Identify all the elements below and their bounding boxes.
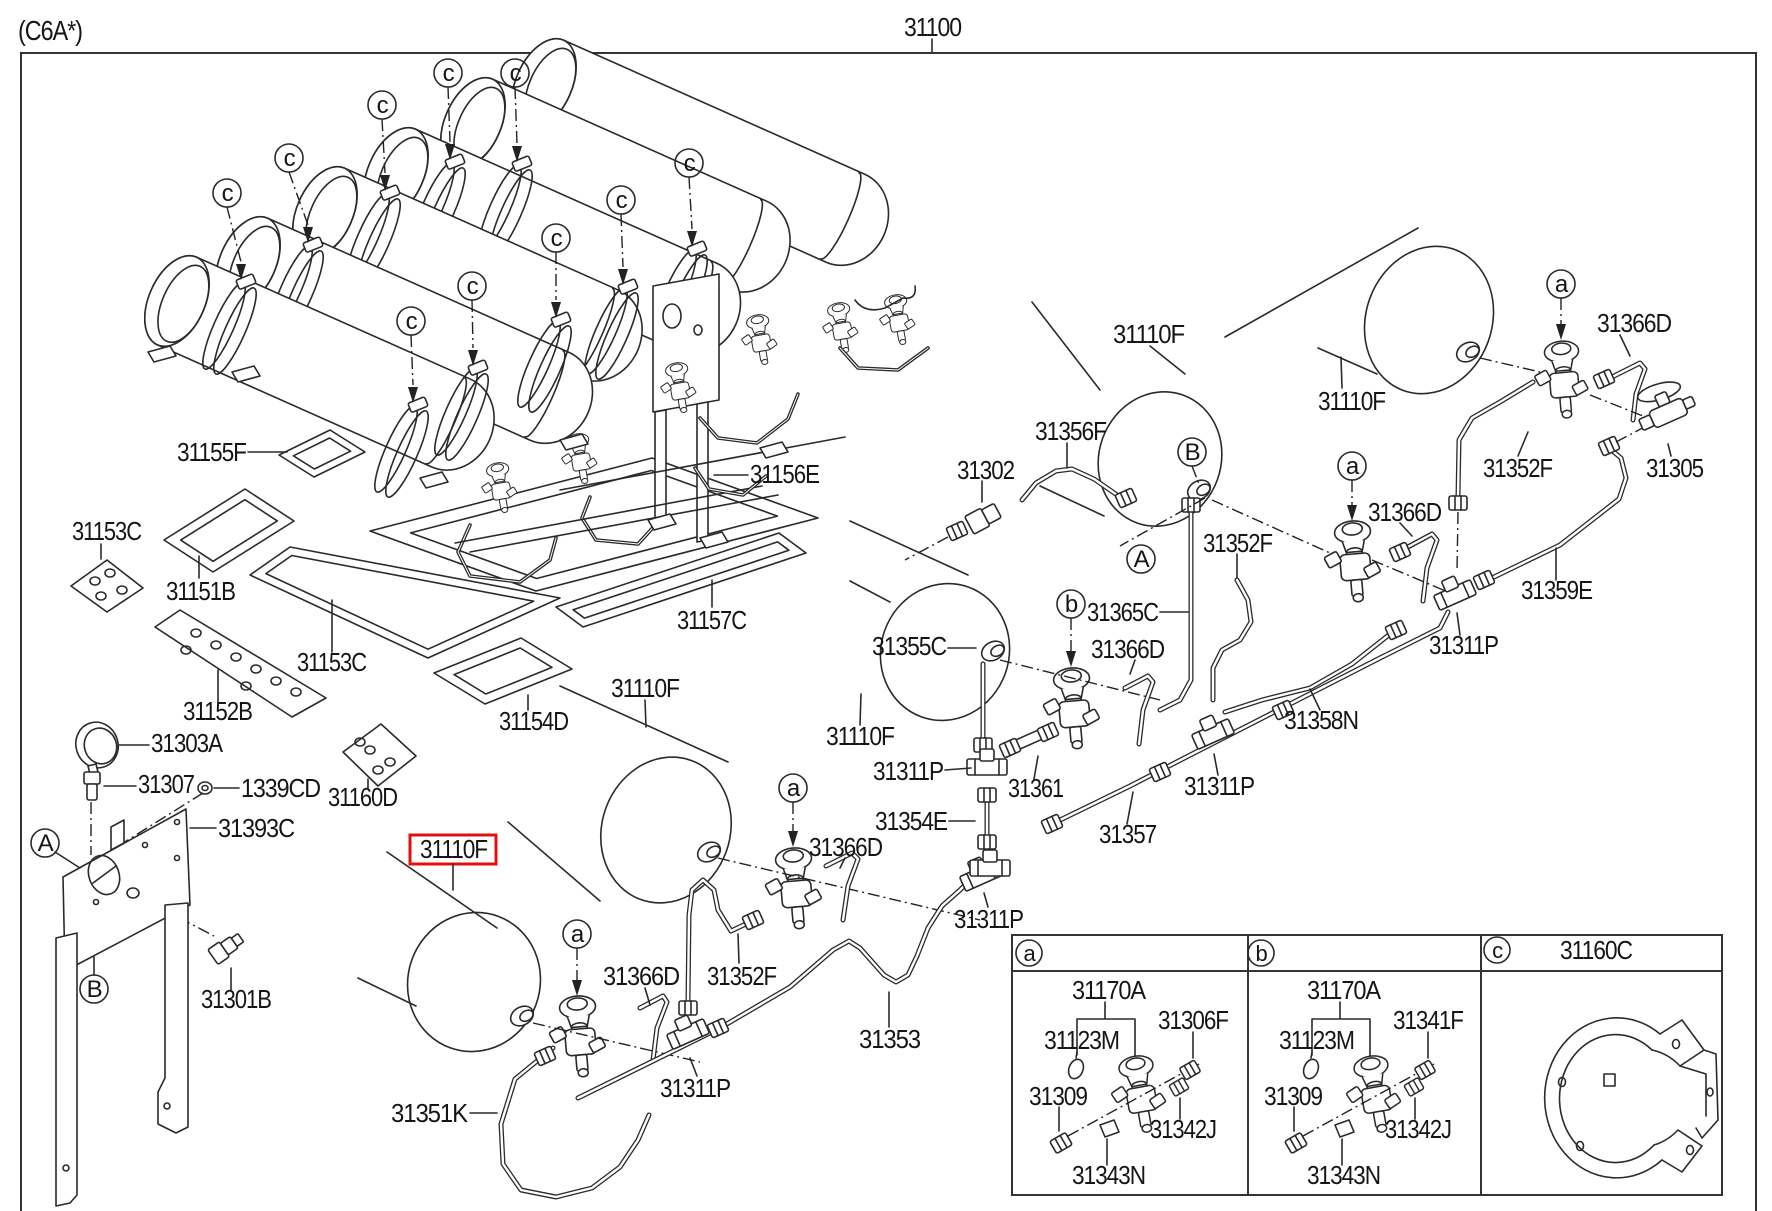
- svg-text:31170A: 31170A: [1307, 975, 1382, 1005]
- svg-text:31311P: 31311P: [873, 756, 943, 786]
- svg-text:31309: 31309: [1029, 1081, 1088, 1111]
- svg-text:c: c: [551, 225, 563, 252]
- svg-text:31342J: 31342J: [1150, 1114, 1216, 1144]
- svg-text:31393C: 31393C: [218, 813, 294, 843]
- svg-text:31123M: 31123M: [1279, 1025, 1354, 1055]
- svg-text:31157C: 31157C: [677, 605, 746, 635]
- svg-text:31341F: 31341F: [1393, 1005, 1463, 1035]
- svg-text:31366D: 31366D: [1091, 634, 1164, 664]
- svg-text:c: c: [510, 60, 522, 87]
- svg-text:c: c: [467, 273, 479, 300]
- svg-text:A: A: [38, 830, 54, 857]
- svg-text:31311P: 31311P: [1184, 771, 1254, 801]
- svg-text:31366D: 31366D: [809, 832, 882, 862]
- svg-text:c: c: [443, 60, 455, 87]
- svg-text:b: b: [1065, 591, 1078, 618]
- svg-text:31359E: 31359E: [1521, 575, 1593, 605]
- svg-text:31366D: 31366D: [1597, 308, 1671, 338]
- svg-text:a: a: [571, 921, 585, 948]
- svg-text:31361: 31361: [1008, 773, 1064, 803]
- svg-text:a: a: [1346, 453, 1360, 480]
- svg-text:B: B: [1185, 439, 1200, 466]
- svg-text:31311P: 31311P: [1429, 630, 1498, 660]
- svg-text:31343N: 31343N: [1307, 1160, 1380, 1190]
- svg-text:a: a: [787, 775, 801, 802]
- svg-text:c: c: [616, 187, 628, 214]
- svg-text:B: B: [87, 976, 102, 1003]
- svg-text:31110F: 31110F: [420, 834, 487, 864]
- svg-text:31366D: 31366D: [603, 961, 679, 991]
- svg-text:1339CD: 1339CD: [241, 773, 320, 803]
- svg-text:31366D: 31366D: [1368, 497, 1441, 527]
- svg-text:31343N: 31343N: [1072, 1160, 1145, 1190]
- svg-text:31153C: 31153C: [72, 516, 141, 546]
- svg-text:31110F: 31110F: [1113, 319, 1184, 349]
- svg-text:31356F: 31356F: [1035, 416, 1106, 446]
- svg-text:31311P: 31311P: [660, 1073, 730, 1103]
- svg-text:31353: 31353: [859, 1024, 921, 1054]
- svg-text:31154D: 31154D: [499, 706, 568, 736]
- svg-text:31352F: 31352F: [1203, 528, 1272, 558]
- svg-text:a: a: [1555, 271, 1569, 298]
- svg-text:31306F: 31306F: [1158, 1005, 1228, 1035]
- svg-text:31342J: 31342J: [1385, 1114, 1451, 1144]
- svg-text:31155F: 31155F: [177, 437, 246, 467]
- svg-text:31110F: 31110F: [1318, 386, 1385, 416]
- svg-text:31358N: 31358N: [1284, 705, 1358, 735]
- svg-text:31309: 31309: [1264, 1081, 1323, 1111]
- svg-text:31354E: 31354E: [875, 806, 948, 836]
- svg-text:31303A: 31303A: [151, 728, 224, 758]
- svg-text:a: a: [1023, 941, 1036, 966]
- svg-text:c: c: [1492, 938, 1503, 963]
- svg-text:31110F: 31110F: [611, 673, 679, 703]
- svg-text:31100: 31100: [904, 12, 962, 42]
- svg-text:c: c: [377, 92, 389, 119]
- svg-text:c: c: [222, 180, 234, 207]
- svg-text:31123M: 31123M: [1044, 1025, 1119, 1055]
- svg-text:c: c: [284, 145, 296, 172]
- svg-text:31307: 31307: [138, 769, 195, 799]
- svg-text:31305: 31305: [1646, 453, 1704, 483]
- svg-text:31352F: 31352F: [707, 961, 776, 991]
- svg-text:31301B: 31301B: [201, 984, 271, 1014]
- svg-text:31352F: 31352F: [1483, 453, 1552, 483]
- svg-text:31351K: 31351K: [391, 1098, 469, 1128]
- svg-text:31355C: 31355C: [872, 631, 946, 661]
- svg-text:31151B: 31151B: [166, 576, 235, 606]
- svg-text:31160D: 31160D: [328, 782, 397, 812]
- svg-text:(C6A*): (C6A*): [18, 15, 82, 46]
- svg-text:31156E: 31156E: [750, 459, 820, 489]
- svg-text:31311P: 31311P: [954, 904, 1023, 934]
- svg-text:b: b: [1255, 941, 1267, 966]
- svg-text:31302: 31302: [957, 455, 1015, 485]
- svg-text:31160C: 31160C: [1560, 935, 1632, 965]
- svg-text:31170A: 31170A: [1072, 975, 1147, 1005]
- svg-text:31365C: 31365C: [1087, 597, 1158, 627]
- svg-text:A: A: [1134, 546, 1150, 573]
- svg-text:c: c: [684, 150, 696, 177]
- svg-text:c: c: [406, 308, 418, 335]
